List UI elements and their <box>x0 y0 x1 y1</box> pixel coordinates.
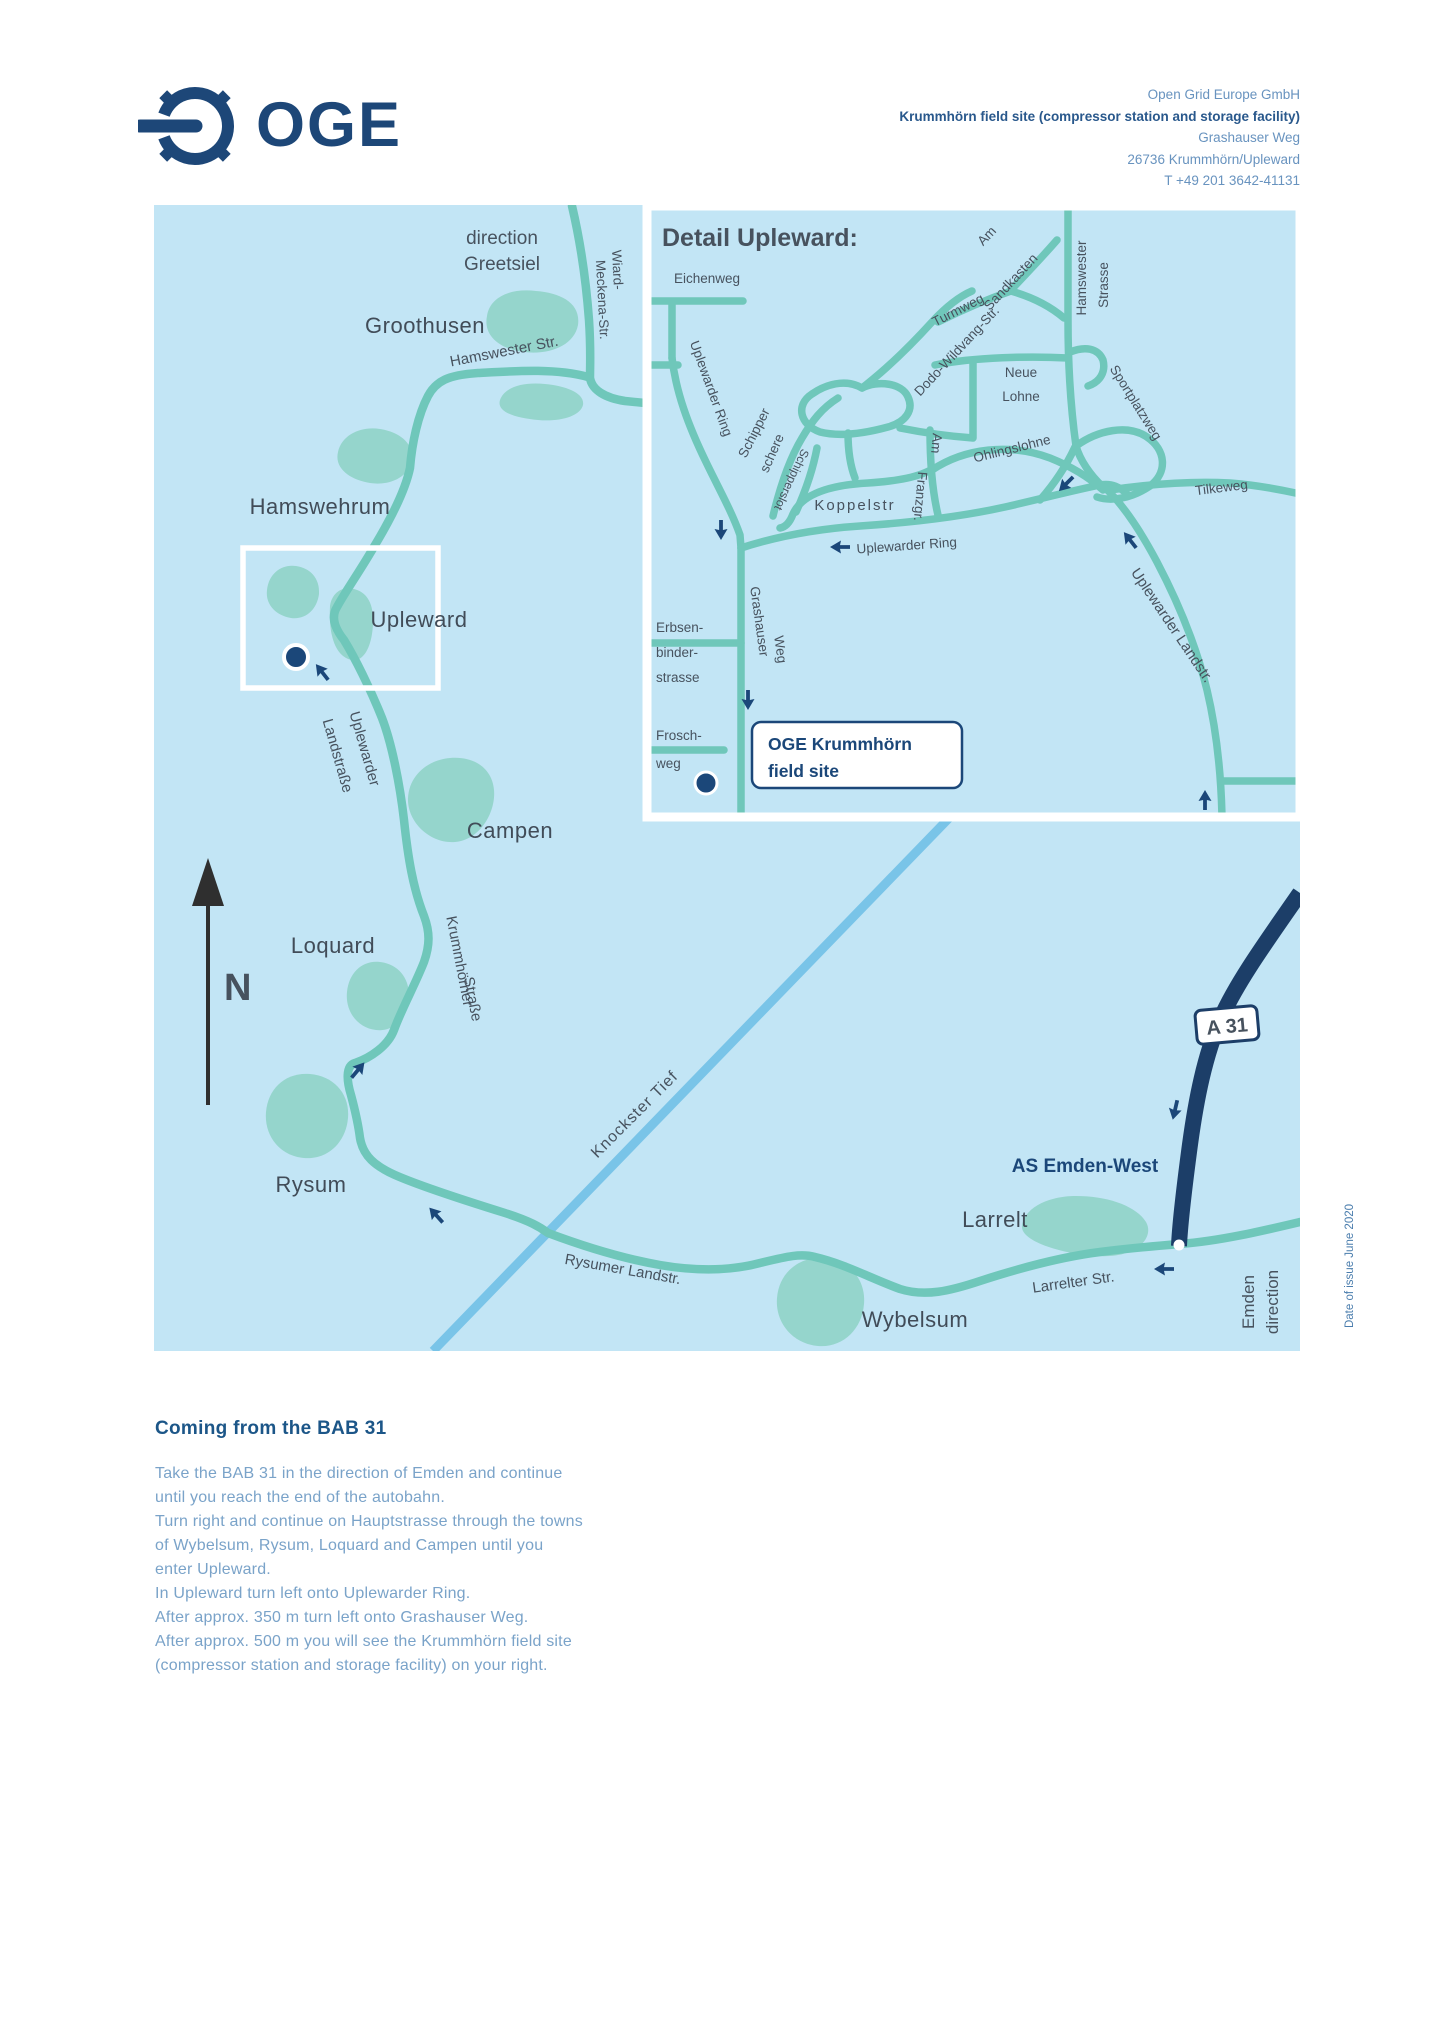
blob-upleward-1 <box>267 566 319 619</box>
directions-line: until you reach the end of the autobahn. <box>155 1486 583 1510</box>
address-street: Grashauser Weg <box>899 127 1300 149</box>
label-eichenweg: Eichenweg <box>674 271 740 286</box>
oge-logo-icon <box>138 80 243 172</box>
label-erbsen-1: Erbsen- <box>656 620 703 635</box>
label-wiard-1: Wiard- <box>609 250 626 290</box>
town-hamswehrum: Hamswehrum <box>250 494 391 519</box>
junction-dot <box>1174 1240 1185 1251</box>
directions-line: Turn right and continue on Hauptstrasse … <box>155 1510 583 1534</box>
label-neue-lohne-1: Neue <box>1005 365 1037 380</box>
date-of-issue-note: Date of issue June 2020 <box>1344 1171 1356 1361</box>
a31-badge: A 31 <box>1195 1005 1260 1044</box>
site-dot-inset <box>695 772 717 794</box>
directions-line: enter Upleward. <box>155 1558 583 1582</box>
directions-paragraph: Take the BAB 31 in the direction of Emde… <box>155 1462 583 1678</box>
label-am-franzgr-1: Am <box>928 433 945 454</box>
phone-number: T +49 201 3642-41131 <box>899 170 1300 192</box>
map: N Groothusen Hamswehrum Upleward Campen … <box>154 205 1300 1351</box>
town-rysum: Rysum <box>276 1172 347 1197</box>
town-groothusen: Groothusen <box>365 313 485 338</box>
address-city: 26736 Krummhörn/Upleward <box>899 149 1300 171</box>
page: { "header": { "logo": "OGE", "address": … <box>0 0 1440 2038</box>
site-callout-line1: OGE Krummhörn <box>768 734 912 754</box>
label-as-emden-west: AS Emden-West <box>1012 1156 1159 1177</box>
directions-line: of Wybelsum, Rysum, Loquard and Campen u… <box>155 1534 583 1558</box>
label-hamswester-1: Hamswester <box>1074 240 1089 316</box>
label-frosch-1: Frosch- <box>656 728 702 743</box>
town-upleward: Upleward <box>371 607 468 632</box>
header-address-block: Open Grid Europe GmbH Krummhörn field si… <box>899 84 1300 192</box>
logo-wordmark: OGE <box>256 94 402 157</box>
directions-line: After approx. 350 m turn left onto Grash… <box>155 1606 583 1630</box>
town-loquard: Loquard <box>291 933 375 958</box>
label-koppelstr: Koppelstr <box>814 497 895 514</box>
label-erbsen-2: binder- <box>656 645 698 660</box>
inset-title: Detail Upleward: <box>662 224 858 252</box>
town-campen: Campen <box>467 818 553 843</box>
town-wybelsum: Wybelsum <box>862 1307 969 1332</box>
a31-badge-label: A 31 <box>1206 1014 1249 1040</box>
label-erbsen-3: strasse <box>656 670 700 685</box>
site-name: Krummhörn field site (compressor station… <box>899 106 1300 128</box>
label-neue-lohne-2: Lohne <box>1002 389 1040 404</box>
blob-rysum <box>266 1074 348 1158</box>
directions-line: (compressor station and storage facility… <box>155 1654 583 1678</box>
label-hamswester-2: Strasse <box>1096 262 1111 308</box>
label-direction-greetsiel-1: direction <box>466 228 538 249</box>
label-direction-greetsiel-2: Greetsiel <box>464 254 540 275</box>
town-larrelt: Larrelt <box>962 1207 1028 1232</box>
label-frosch-2: weg <box>655 756 681 771</box>
directions-line: Take the BAB 31 in the direction of Emde… <box>155 1462 583 1486</box>
directions-line: After approx. 500 m you will see the Kru… <box>155 1630 583 1654</box>
site-callout-box: OGE Krummhörn field site <box>752 722 962 788</box>
label-direction-emden-1: direction <box>1263 1270 1282 1334</box>
label-direction-emden-2: Emden <box>1239 1275 1258 1329</box>
directions-line: In Upleward turn left onto Uplewarder Ri… <box>155 1582 583 1606</box>
company-name: Open Grid Europe GmbH <box>899 84 1300 106</box>
site-callout-line2: field site <box>768 761 839 781</box>
directions-heading: Coming from the BAB 31 <box>155 1418 386 1440</box>
north-label: N <box>224 967 251 1009</box>
site-dot-main <box>284 645 308 669</box>
